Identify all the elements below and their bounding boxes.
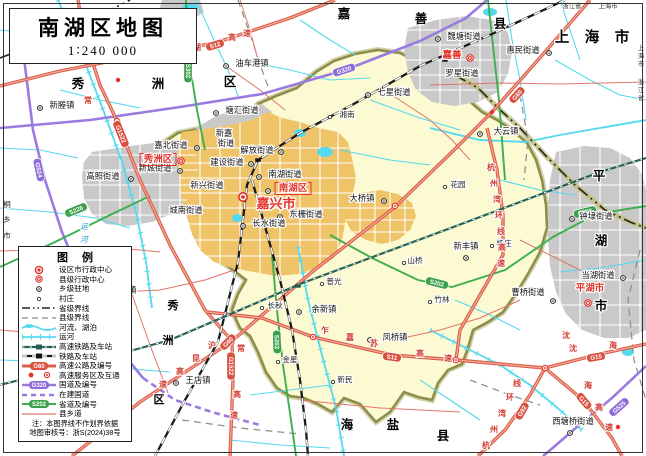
map-label: 塘汇街道 bbox=[225, 105, 258, 115]
hsr-icon bbox=[19, 342, 59, 352]
map-label: 洲 bbox=[163, 334, 174, 347]
map-label: 湘南 bbox=[339, 109, 355, 119]
svg-text:G1522: G1522 bbox=[114, 124, 128, 144]
map-label: 县 bbox=[494, 17, 507, 31]
map-label: 嘉兴市 bbox=[255, 196, 295, 211]
map-label: 解放街道 bbox=[240, 145, 273, 155]
map-label: 上海市 bbox=[599, 1, 618, 10]
map-label: 高照街道 bbox=[86, 171, 119, 181]
map-label: 湖 bbox=[595, 233, 608, 248]
map-label: 普光 bbox=[326, 276, 342, 286]
page-title: 南湖区地图 bbox=[10, 12, 196, 42]
map-label: 高 bbox=[416, 348, 424, 358]
legend-item: 乡级驻地 bbox=[19, 284, 131, 294]
county-boundary-icon bbox=[19, 313, 59, 323]
map-label: 海 bbox=[584, 380, 592, 390]
road-number-badge: G92 bbox=[514, 401, 531, 421]
township-marker bbox=[250, 163, 252, 165]
railway-station-marker bbox=[255, 158, 261, 161]
legend-note: 注：本图界线不作划界依据 bbox=[19, 419, 131, 428]
map-label: 嘉 bbox=[337, 6, 351, 21]
map-label: 昆 bbox=[192, 353, 200, 363]
map-label: 市 bbox=[3, 230, 11, 240]
map-label: 建设街道 bbox=[210, 157, 243, 167]
railway-icon bbox=[19, 351, 59, 361]
village-icon bbox=[19, 294, 59, 304]
map-label: 街道 bbox=[218, 138, 235, 148]
svg-text:S302: S302 bbox=[184, 64, 191, 79]
map-label: 余新镇 bbox=[312, 304, 337, 314]
road-number-badge: G1522 bbox=[227, 352, 235, 380]
svg-text:S202: S202 bbox=[32, 402, 47, 408]
road-number-badge: G1522 bbox=[112, 119, 130, 148]
map-label: 省 bbox=[638, 93, 644, 102]
county-road-icon bbox=[19, 409, 59, 419]
provincial-road-icon: S202 bbox=[19, 399, 59, 409]
township-marker bbox=[196, 147, 198, 149]
map-label: 海 bbox=[585, 28, 600, 46]
map-label: 市 bbox=[595, 298, 608, 313]
road-number-badge: G15 bbox=[575, 391, 594, 411]
township-marker bbox=[367, 94, 369, 96]
map-label: 高 bbox=[498, 242, 506, 252]
map-label: 新丰镇 bbox=[454, 241, 479, 251]
map-label: 湾 bbox=[498, 408, 506, 418]
map-label: 沪 bbox=[208, 340, 216, 350]
map-label: 区 bbox=[224, 75, 237, 89]
map-label: 王店镇 bbox=[186, 375, 211, 385]
map-label: 嘉善 bbox=[441, 49, 462, 61]
map-label: 杭 bbox=[482, 440, 490, 450]
county-center-icon bbox=[19, 274, 59, 284]
map-label: 海 bbox=[638, 51, 645, 60]
map-label: 速 bbox=[159, 379, 167, 389]
township-marker bbox=[437, 38, 439, 40]
map-label: 江 bbox=[638, 86, 645, 94]
township-marker bbox=[280, 151, 282, 153]
township-marker bbox=[130, 178, 132, 180]
village-marker bbox=[260, 306, 263, 309]
map-label: 高 bbox=[176, 366, 184, 376]
map-label: 海 bbox=[341, 417, 354, 432]
map-label: 秀 bbox=[71, 76, 85, 91]
map-label: 州 bbox=[489, 179, 498, 188]
township-marker bbox=[298, 311, 300, 313]
map-label: 城南街道 bbox=[169, 205, 202, 215]
township-marker bbox=[215, 112, 217, 114]
legend-item: 河流、湖泊 bbox=[19, 323, 131, 333]
map-label: 钟埭街道 bbox=[579, 211, 612, 221]
map-label: 乡 bbox=[3, 215, 11, 224]
township-marker bbox=[175, 382, 177, 384]
map-label: 长秋 bbox=[267, 300, 283, 310]
interchange-marker bbox=[394, 205, 396, 207]
map-label: 当湖街道 bbox=[581, 270, 614, 280]
national-road-icon: G320 bbox=[19, 380, 59, 390]
map-label: 新民 bbox=[337, 374, 352, 384]
map-label: 环 bbox=[495, 211, 503, 220]
map-label: 竹林 bbox=[434, 294, 450, 304]
map-label: 速 bbox=[444, 353, 452, 363]
township-marker bbox=[242, 225, 244, 227]
map-label: 区 bbox=[154, 393, 165, 406]
map-label: 苏 bbox=[370, 338, 378, 348]
title-box: 南湖区地图 1∶240 000 bbox=[9, 8, 197, 64]
map-label: 沈 bbox=[562, 330, 570, 340]
map-label: 湾 bbox=[493, 194, 501, 204]
legend-title: 图例 bbox=[19, 249, 131, 265]
map-label: 新嘉 bbox=[216, 128, 233, 138]
map-label: 海 bbox=[609, 340, 617, 350]
map-page: G60G60G1522G1522S12S11G92G15G15G320G524G… bbox=[0, 0, 646, 456]
village-marker bbox=[443, 185, 446, 188]
map-label: 速 bbox=[230, 410, 238, 420]
svg-text:S202: S202 bbox=[273, 335, 281, 350]
map-label: 善 bbox=[415, 11, 428, 26]
road-number-badge: S202 bbox=[272, 330, 281, 354]
map-label: 上 bbox=[555, 29, 570, 46]
map-label: 大云镇 bbox=[494, 126, 519, 136]
map-label: 上 bbox=[638, 43, 644, 52]
expressway-icon: G60 bbox=[19, 361, 59, 371]
township-marker bbox=[258, 176, 260, 178]
road-number-badge: G15 bbox=[586, 351, 606, 363]
service-area-marker bbox=[616, 425, 620, 429]
city-center-marker bbox=[241, 195, 245, 199]
map-label: 河 bbox=[80, 235, 89, 244]
township-marker bbox=[179, 170, 181, 172]
map-label: 洲 bbox=[152, 77, 165, 91]
service-area-marker bbox=[116, 78, 120, 82]
map-label: 桐 bbox=[3, 199, 11, 209]
canal-icon bbox=[19, 332, 59, 342]
interchange-marker bbox=[455, 359, 457, 361]
svg-text:G1522: G1522 bbox=[227, 357, 234, 376]
village-marker bbox=[490, 244, 493, 247]
township-marker bbox=[479, 133, 481, 135]
river-lake-icon bbox=[19, 322, 59, 332]
village-marker bbox=[320, 282, 323, 285]
township-marker bbox=[552, 300, 554, 302]
map-label: 秀 bbox=[167, 298, 179, 312]
legend-panel: 图例 设区市行政中心 县级行政中心 乡级驻地 村庄 省级界线 县级界线 河流、湖… bbox=[18, 246, 132, 442]
map-label: 金星 bbox=[282, 354, 298, 364]
map-label: 州 bbox=[489, 425, 498, 434]
map-label: 大桥镇 bbox=[350, 193, 375, 203]
map-label: 速 bbox=[605, 422, 613, 432]
map-label: 山桥 bbox=[407, 255, 423, 265]
map-label: 秀洲区 bbox=[143, 153, 173, 165]
map-label: 高 bbox=[233, 389, 241, 399]
map-label: 曹桥街道 bbox=[511, 287, 544, 297]
village-marker bbox=[402, 261, 405, 264]
county-center-marker bbox=[587, 302, 590, 305]
map-label: 平湖市 bbox=[576, 282, 605, 294]
map-label: 常 bbox=[84, 95, 92, 105]
map-label: 长水街道 bbox=[252, 218, 285, 228]
interchange-marker bbox=[312, 336, 314, 338]
township-marker bbox=[39, 107, 41, 109]
map-scale: 1∶240 000 bbox=[10, 43, 196, 59]
national-road-construction-icon bbox=[19, 390, 59, 400]
county-center-marker bbox=[469, 57, 472, 60]
road-number-badge: G524 bbox=[32, 158, 45, 183]
map-label: 线 bbox=[497, 226, 505, 236]
legend-item: 县乡道 bbox=[19, 409, 131, 419]
township-marker bbox=[622, 277, 624, 279]
map-label: 线 bbox=[513, 378, 521, 388]
township-marker bbox=[225, 65, 227, 67]
map-label: 速 bbox=[497, 258, 505, 268]
interchange-marker bbox=[544, 367, 546, 369]
map-label: 常 bbox=[237, 343, 245, 353]
map-label: 杭 bbox=[487, 162, 495, 172]
township-marker bbox=[465, 257, 467, 259]
township-marker bbox=[571, 218, 573, 220]
map-label: 西塘桥街道 bbox=[552, 416, 594, 426]
map-label: 惠民街道 bbox=[506, 45, 539, 55]
map-label: 盐 bbox=[387, 417, 400, 432]
map-label: 嘉北街道 bbox=[154, 140, 187, 150]
map-label: 嘉 bbox=[345, 332, 354, 342]
township-marker bbox=[569, 432, 571, 434]
village-marker bbox=[328, 115, 331, 118]
map-label: 新塍镇 bbox=[50, 100, 75, 110]
city-center-icon bbox=[19, 265, 59, 275]
map-label: 南湖区 bbox=[279, 182, 308, 194]
svg-text:G320: G320 bbox=[32, 383, 47, 389]
map-label: 油车港镇 bbox=[235, 58, 268, 68]
map-approval-number: 地图审核号：浙S(2024)38号 bbox=[19, 428, 131, 437]
map-label: 平 bbox=[593, 169, 606, 183]
map-label: 魏塘街道 bbox=[447, 31, 480, 41]
map-label: 新兴街道 bbox=[190, 180, 223, 190]
map-label: 乍 bbox=[321, 325, 329, 335]
village-marker bbox=[331, 380, 334, 383]
svg-text:G15: G15 bbox=[590, 353, 603, 362]
township-icon bbox=[19, 284, 59, 294]
township-marker bbox=[267, 190, 269, 192]
map-label: 南湖街道 bbox=[268, 169, 301, 179]
map-label: 花园 bbox=[450, 179, 465, 189]
village-marker bbox=[428, 300, 431, 303]
township-marker bbox=[548, 52, 550, 54]
map-label: 浙 bbox=[638, 77, 645, 86]
map-label: 罗星街道 bbox=[445, 68, 478, 78]
road-number-badge: S12 bbox=[205, 38, 225, 52]
township-marker bbox=[383, 200, 385, 202]
hsr-station-marker bbox=[295, 284, 301, 287]
map-label: 凤桥镇 bbox=[383, 332, 408, 342]
map-label: 市 bbox=[638, 59, 644, 68]
map-label: 县 bbox=[437, 429, 450, 443]
map-label: 环 bbox=[506, 393, 514, 402]
village-marker bbox=[276, 360, 279, 363]
map-label: 高 bbox=[228, 32, 236, 42]
map-label: 七星街道 bbox=[377, 87, 410, 97]
svg-text:S226: S226 bbox=[68, 204, 85, 216]
svg-text:G60: G60 bbox=[33, 364, 45, 370]
province-boundary-icon bbox=[19, 303, 59, 313]
map-label: 速 bbox=[243, 28, 251, 38]
county-center-marker bbox=[180, 160, 183, 163]
map-label: 沈 bbox=[569, 343, 577, 353]
map-label: 市 bbox=[615, 28, 630, 46]
map-label: 浙江省 bbox=[563, 1, 582, 10]
service-interchange-icon bbox=[19, 370, 59, 380]
service-area-marker bbox=[490, 110, 494, 114]
map-label: 高 bbox=[595, 402, 603, 412]
